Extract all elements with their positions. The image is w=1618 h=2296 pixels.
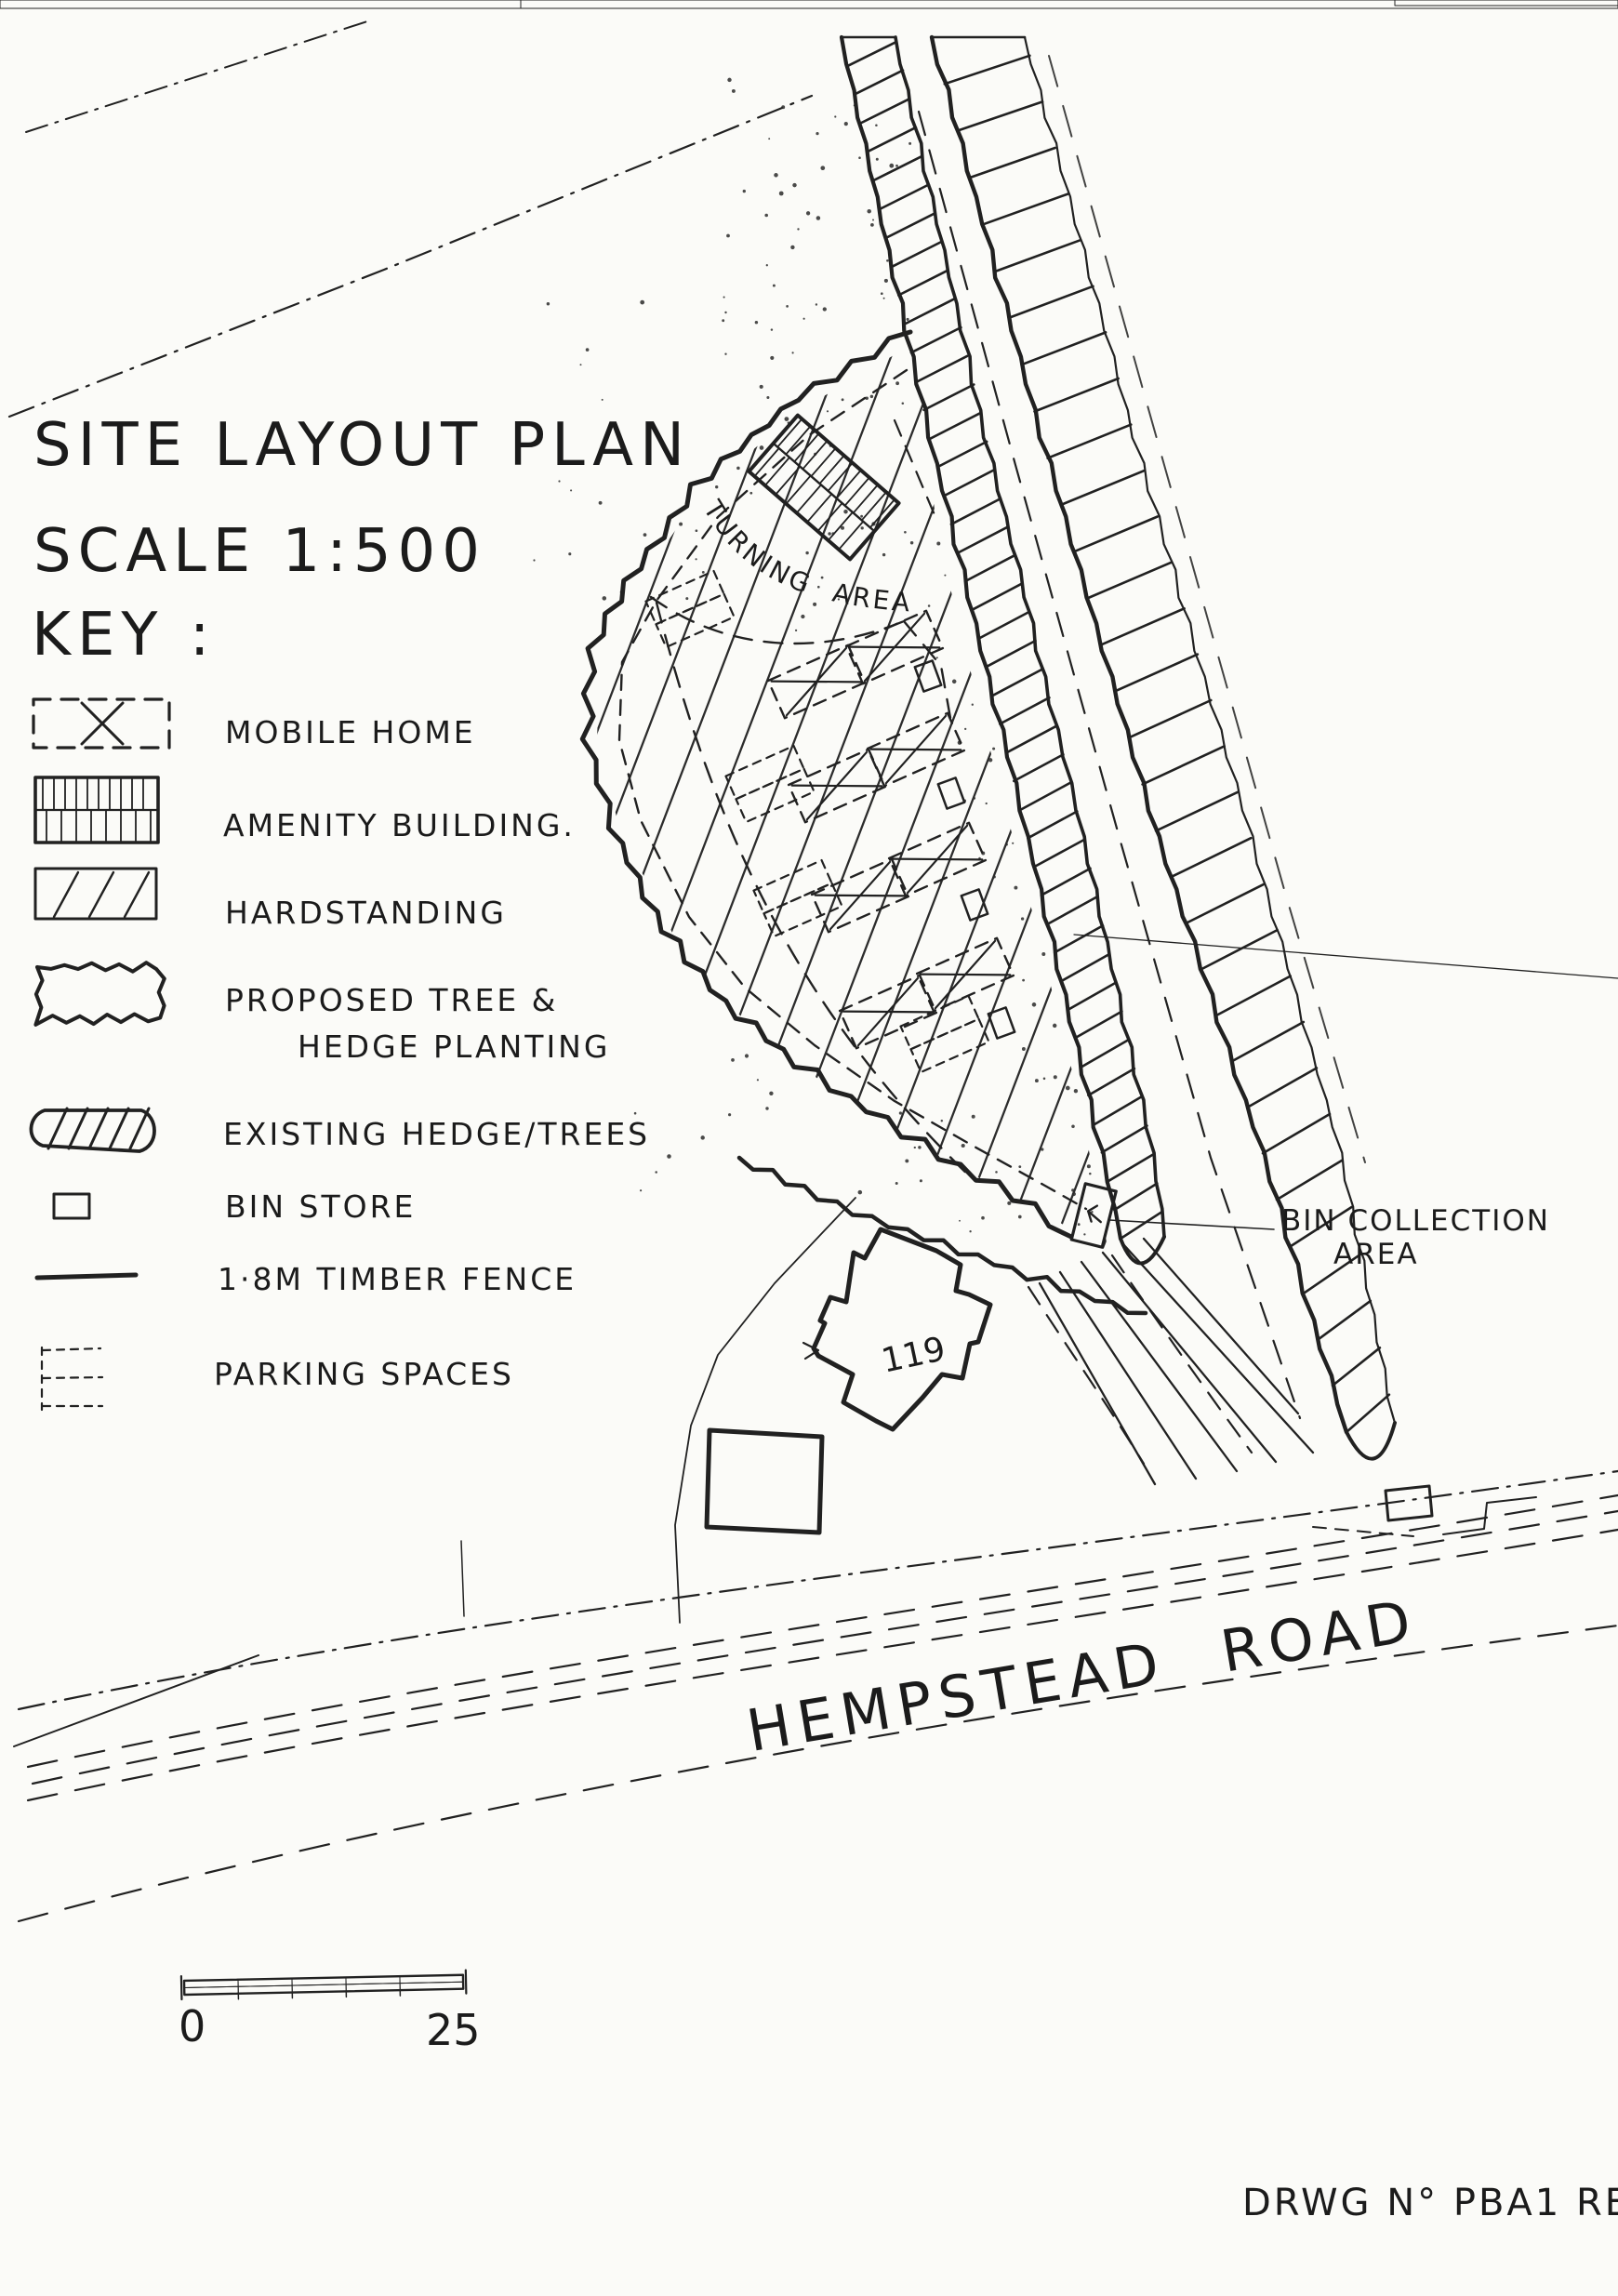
scale-bar-start-label: 0 (179, 2001, 206, 2051)
legend-swatch-timber-fence (37, 1275, 136, 1278)
legend-swatch-amenity-building (35, 777, 158, 843)
existing-hedge-band-east (932, 37, 1395, 1459)
legend-label-proposed-tree-line2: HEDGE PLANTING (298, 1029, 610, 1065)
parking-bay (753, 860, 842, 936)
bin-collection-annotation-line2: AREA (1333, 1238, 1419, 1271)
legend-label-timber-fence: 1·8M TIMBER FENCE (218, 1261, 577, 1297)
hardstanding-entrance-hatch (1040, 1239, 1313, 1484)
bin-store (988, 1007, 1015, 1038)
legend-swatch-bin-store (54, 1194, 89, 1218)
legend-label-amenity-building: AMENITY BUILDING. (223, 807, 576, 843)
arrow-icon (1086, 1204, 1105, 1224)
key-heading: KEY : (32, 601, 216, 670)
parking-space-markings (645, 571, 988, 1072)
bin-store (962, 889, 988, 920)
legend-label-bin-store: BIN STORE (225, 1188, 416, 1225)
house-119 (803, 1229, 990, 1429)
scale-bar-end-label: 25 (426, 2005, 481, 2055)
scan-edge-artifact (0, 0, 1618, 8)
site-layout-plan-sheet: TURNING AREA SITE LAYOUT PLAN SCALE 1:50… (0, 0, 1618, 2296)
drawing-number: DRWG N° PBA1 REV A (1242, 2182, 1618, 2224)
existing-hedge-band-west (842, 37, 1164, 1264)
legend-swatch-proposed-tree-hedge (35, 962, 164, 1025)
scale-label: SCALE 1:500 (33, 517, 486, 586)
mobile-home-plots (768, 611, 1014, 1048)
house-119-outline (814, 1229, 990, 1429)
outbuilding (707, 1430, 822, 1533)
legend-label-proposed-tree-line1: PROPOSED TREE & (225, 982, 558, 1018)
legend-label-existing-hedge: EXISTING HEDGE/TREES (223, 1116, 650, 1152)
legend-label-hardstanding: HARDSTANDING (225, 895, 507, 931)
legend-swatch-hardstanding (35, 869, 156, 919)
bin-store (915, 660, 941, 691)
leader-line (1109, 1220, 1274, 1229)
bin-collection-area (1071, 1184, 1274, 1247)
bin-collection-annotation-line1: BIN COLLECTION (1281, 1204, 1550, 1238)
legend-swatch-mobile-home (33, 699, 169, 748)
scale-bar (181, 1971, 466, 2000)
legend-label-parking-spaces: PARKING SPACES (214, 1356, 514, 1392)
bin-store (938, 777, 964, 808)
legend-swatch-existing-hedge (31, 1108, 154, 1151)
page-title: SITE LAYOUT PLAN (33, 411, 691, 480)
parking-bay (900, 996, 988, 1072)
legend-swatch-parking-spaces (42, 1347, 102, 1410)
stipple-dots (533, 78, 1093, 1236)
legend-label-mobile-home: MOBILE HOME (225, 714, 476, 750)
